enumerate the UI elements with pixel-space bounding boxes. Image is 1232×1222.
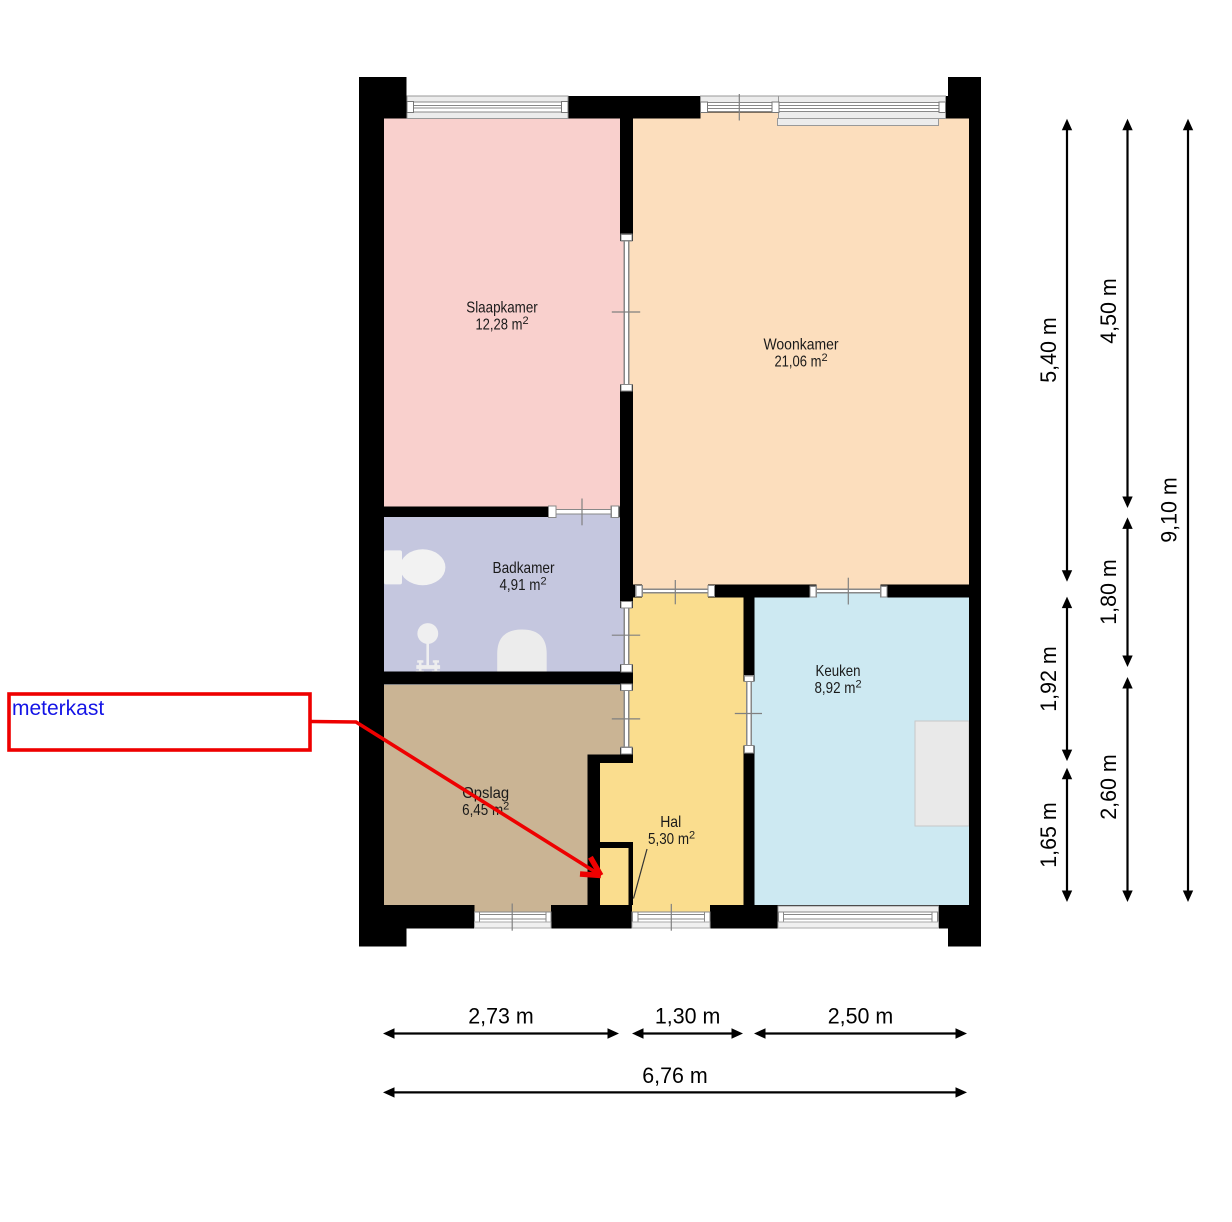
svg-text:8,92 m2: 8,92 m2 bbox=[814, 678, 861, 697]
svg-text:1,80 m: 1,80 m bbox=[1096, 559, 1121, 625]
svg-text:5,40 m: 5,40 m bbox=[1036, 317, 1061, 383]
svg-text:Woonkamer: Woonkamer bbox=[764, 337, 840, 354]
svg-text:9,10 m: 9,10 m bbox=[1157, 477, 1182, 543]
svg-text:1,65 m: 1,65 m bbox=[1036, 802, 1061, 868]
svg-text:2,73 m: 2,73 m bbox=[468, 1004, 534, 1029]
svg-text:1,92 m: 1,92 m bbox=[1036, 646, 1061, 712]
svg-text:Keuken: Keuken bbox=[816, 663, 861, 680]
svg-text:12,28 m2: 12,28 m2 bbox=[475, 315, 528, 334]
svg-text:2,60 m: 2,60 m bbox=[1096, 754, 1121, 820]
svg-text:2,50 m: 2,50 m bbox=[828, 1004, 894, 1029]
svg-text:6,76 m: 6,76 m bbox=[642, 1063, 708, 1088]
svg-text:Badkamer: Badkamer bbox=[493, 560, 556, 577]
svg-text:5,30 m2: 5,30 m2 bbox=[648, 830, 695, 849]
svg-text:Slaapkamer: Slaapkamer bbox=[466, 300, 538, 317]
svg-text:4,50 m: 4,50 m bbox=[1096, 278, 1121, 344]
svg-text:4,91 m2: 4,91 m2 bbox=[499, 576, 546, 595]
svg-text:Hal: Hal bbox=[660, 814, 681, 831]
svg-text:meterkast: meterkast bbox=[12, 697, 104, 720]
svg-text:1,30 m: 1,30 m bbox=[655, 1004, 721, 1029]
svg-text:21,06 m2: 21,06 m2 bbox=[774, 352, 827, 371]
